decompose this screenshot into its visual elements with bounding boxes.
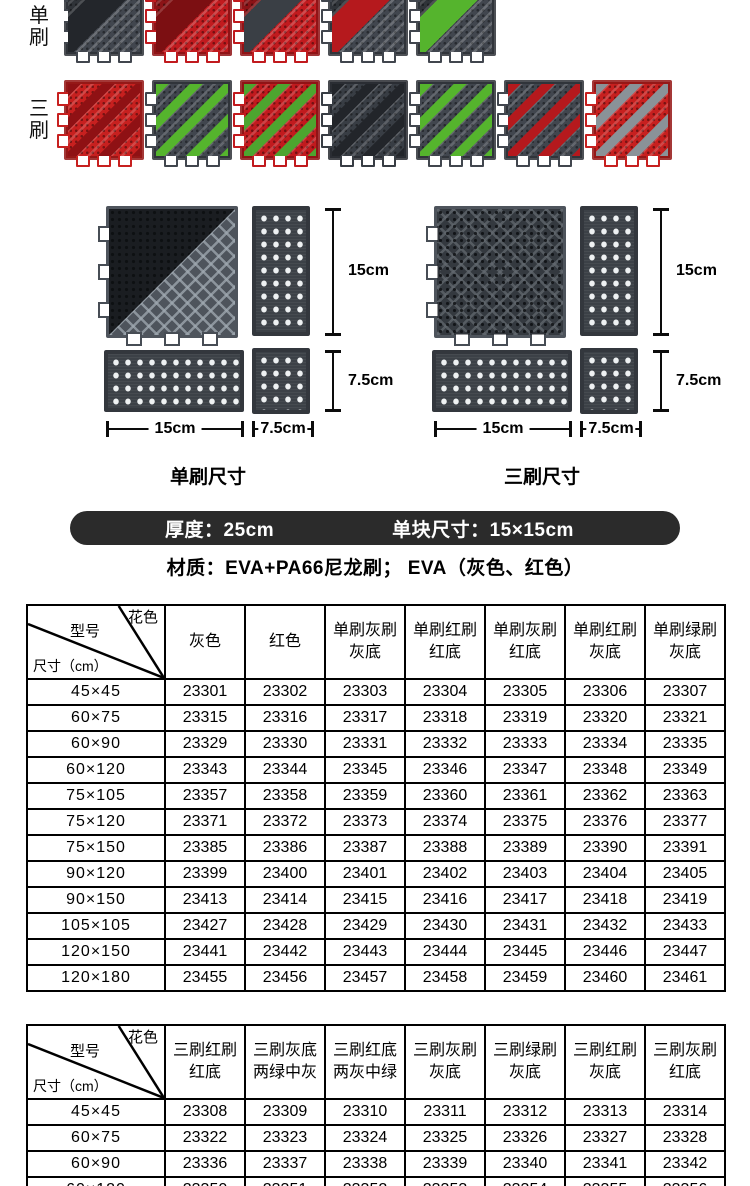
tile-bottom-tabs [592,154,672,167]
single-brush-table-host: 花色型号尺寸（cm）灰色红色单刷灰刷灰底单刷红刷红底单刷灰刷红底单刷红刷灰底单刷… [26,604,726,992]
column-header: 灰色 [165,605,245,679]
code-cell: 23309 [245,1099,325,1125]
corner-label-model: 型号 [70,624,100,640]
code-cell: 23386 [245,835,325,861]
code-cell: 23303 [325,679,405,705]
tile-bottom-tabs [152,50,232,63]
code-cell: 23337 [245,1151,325,1177]
code-cell: 23331 [325,731,405,757]
vertical-dim-15cm-label: 15cm [676,262,717,280]
tile-bottom-tabs [240,50,320,63]
corner-label-size: 尺寸（cm） [33,1078,108,1094]
code-cell: 23371 [165,809,245,835]
size-cell: 75×120 [27,809,165,835]
column-header: 三刷红刷红底 [165,1025,245,1099]
corner-label-pattern: 花色 [128,1030,158,1046]
code-cell: 23302 [245,679,325,705]
code-cell: 23351 [245,1177,325,1186]
column-header: 三刷灰刷红底 [645,1025,725,1099]
code-cell: 23385 [165,835,245,861]
code-cell: 23312 [485,1099,565,1125]
tile-triple-green-brush-gray-base [416,80,496,160]
code-cell: 23310 [325,1099,405,1125]
table-row: 120×150234412344223443234442344523446234… [27,939,725,965]
code-cell: 23417 [485,887,565,913]
code-cell: 23318 [405,705,485,731]
tile-left-tabs [233,80,246,160]
tile-single-red-brush-gray-base [328,0,408,56]
horizontal-dim-7-5cm-label: 7.5cm [586,420,635,438]
code-cell: 23375 [485,809,565,835]
tile-left-tabs [321,0,334,56]
single-brush-diagram-caption: 单刷尺寸 [128,462,288,489]
tile-triple-red-brush-gray-base [504,80,584,160]
size-cell: 120×150 [27,939,165,965]
column-header: 三刷灰底两绿中灰 [245,1025,325,1099]
single-brush-tile-image [106,206,238,338]
code-cell: 23301 [165,679,245,705]
code-cell: 23399 [165,861,245,887]
code-cell: 23332 [405,731,485,757]
size-cell: 60×120 [27,1177,165,1186]
size-cell: 60×75 [27,705,165,731]
code-cell: 23457 [325,965,405,991]
horizontal-dim-7-5cm: 7.5cm [252,428,314,430]
tile-left-tabs [409,0,422,56]
code-cell: 23374 [405,809,485,835]
triple-brush-tile-image [434,206,566,338]
code-cell: 23357 [165,783,245,809]
code-cell: 23360 [405,783,485,809]
code-cell: 23419 [645,887,725,913]
size-cell: 90×150 [27,887,165,913]
column-header: 单刷红刷灰底 [565,605,645,679]
table-row: 45×4523308233092331023311233122331323314 [27,1099,725,1125]
code-cell: 23334 [565,731,645,757]
code-cell: 23308 [165,1099,245,1125]
triple-brush-table-host: 花色型号尺寸（cm）三刷红刷红底三刷灰底两绿中灰三刷红底两灰中绿三刷灰刷灰底三刷… [26,1024,726,1186]
code-cell: 23461 [645,965,725,991]
code-cell: 23346 [405,757,485,783]
corner-label-size: 尺寸（cm） [33,658,108,674]
tile-triple-gray-brush-gray-base [328,80,408,160]
code-cell: 23389 [485,835,565,861]
code-cell: 23358 [245,783,325,809]
code-cell: 23324 [325,1125,405,1151]
code-cell: 23354 [485,1177,565,1186]
code-cell: 23307 [645,679,725,705]
vertical-dim-7-5cm-label: 7.5cm [348,372,393,390]
tile-bottom-tabs [504,154,584,167]
vertical-dim-15cm [332,208,334,336]
code-cell: 23404 [565,861,645,887]
code-cell: 23456 [245,965,325,991]
vertical-dim-15cm [660,208,662,336]
code-cell: 23338 [325,1151,405,1177]
tile-left-tabs [64,0,70,56]
code-cell: 23352 [325,1177,405,1186]
table-row: 60×7523322233232332423325233262332723328 [27,1125,725,1151]
code-cell: 23349 [645,757,725,783]
code-cell: 23330 [245,731,325,757]
code-cell: 23441 [165,939,245,965]
single-brush-row-label: 单刷 [28,5,50,49]
code-cell: 23348 [565,757,645,783]
single-brush-tile-row [64,0,684,63]
horizontal-dim-15cm: 15cm [106,428,244,430]
tile-left-tabs [233,0,246,56]
horizontal-dim-15cm-label: 15cm [149,420,202,438]
code-cell: 23447 [645,939,725,965]
code-cell: 23305 [485,679,565,705]
code-cell: 23363 [645,783,725,809]
code-cell: 23445 [485,939,565,965]
table-row: 60×9023336233372333823339233402334123342 [27,1151,725,1177]
tile-bottom-tabs [64,154,144,167]
code-cell: 23314 [645,1099,725,1125]
tile-left-tabs [57,80,70,160]
size-cell: 75×105 [27,783,165,809]
code-cell: 23391 [645,835,725,861]
tile-bottom-tabs [416,154,496,167]
code-cell: 23444 [405,939,485,965]
code-cell: 23373 [325,809,405,835]
product-spec-page: 单刷 三刷 15cm 7.5cm 15cm 7.5cm 15cm [0,0,750,1186]
code-cell: 23390 [565,835,645,861]
code-cell: 23405 [645,861,725,887]
triple-brush-diagram-caption: 三刷尺寸 [462,462,622,489]
tile-left-tabs [321,80,334,160]
code-cell: 23320 [565,705,645,731]
tile-bottom-tabs [152,154,232,167]
table-corner-header: 花色型号尺寸（cm） [27,605,165,679]
size-cell: 60×90 [27,731,165,757]
tile-bottom-tabs [328,50,408,63]
tile-single-gray-brush-red-base [240,0,320,56]
table-row: 75×1052335723358233592336023361233622336… [27,783,725,809]
code-cell: 23325 [405,1125,485,1151]
tile-single-gray-brush-gray-base [64,0,144,56]
horizontal-dim-15cm: 15cm [434,428,572,430]
vertical-dim-15cm-label: 15cm [348,262,389,280]
code-cell: 23443 [325,939,405,965]
code-cell: 23315 [165,705,245,731]
tile-bottom-tabs [64,50,144,63]
code-cell: 23431 [485,913,565,939]
column-header: 单刷红刷红底 [405,605,485,679]
column-header: 单刷灰刷红底 [485,605,565,679]
tile-left-tabs [585,80,598,160]
single-brush-dimension-diagram: 15cm 7.5cm 15cm 7.5cm [100,200,400,450]
code-cell: 23343 [165,757,245,783]
tile-triple-gray-base-two-green [152,80,232,160]
tile-left-tabs [497,80,510,160]
code-cell: 23326 [485,1125,565,1151]
code-cell: 23319 [485,705,565,731]
tile-bottom-tabs [434,332,566,346]
vertical-strip-image [580,206,638,336]
tile-triple-gray-brush-red-base [592,80,672,160]
code-cell: 23459 [485,965,565,991]
tile-bottom-tabs [240,154,320,167]
corner-label-pattern: 花色 [128,610,158,626]
table-row: 75×1502338523386233872338823389233902339… [27,835,725,861]
size-cell: 60×90 [27,1151,165,1177]
code-cell: 23342 [645,1151,725,1177]
vertical-dim-7-5cm [332,350,334,412]
table-row: 60×1202335023351233522335323354233552335… [27,1177,725,1186]
code-cell: 23432 [565,913,645,939]
table-row: 60×1202334323344233452334623347233482334… [27,757,725,783]
code-cell: 23336 [165,1151,245,1177]
code-cell: 23335 [645,731,725,757]
triple-brush-code-table: 花色型号尺寸（cm）三刷红刷红底三刷灰底两绿中灰三刷红底两灰中绿三刷灰刷灰底三刷… [26,1024,726,1186]
code-cell: 23333 [485,731,565,757]
code-cell: 23372 [245,809,325,835]
code-cell: 23353 [405,1177,485,1186]
code-cell: 23347 [485,757,565,783]
spec-bar: 厚度：25cm 单块尺寸：15×15cm [70,511,680,545]
code-cell: 23414 [245,887,325,913]
tile-left-tabs [98,206,112,338]
code-cell: 23402 [405,861,485,887]
code-cell: 23458 [405,965,485,991]
code-cell: 23460 [565,965,645,991]
code-cell: 23329 [165,731,245,757]
table-row: 60×9023329233302333123332233332333423335 [27,731,725,757]
size-cell: 120×180 [27,965,165,991]
code-cell: 23361 [485,783,565,809]
unit-size-spec: 单块尺寸：15×15cm [392,515,574,542]
vertical-dim-7-5cm [660,350,662,412]
size-cell: 105×105 [27,913,165,939]
code-cell: 23306 [565,679,645,705]
tile-left-tabs [145,0,158,56]
table-row: 75×1202337123372233732337423375233762337… [27,809,725,835]
table-row: 90×1502341323414234152341623417234182341… [27,887,725,913]
thickness-spec: 厚度：25cm [165,515,274,542]
code-cell: 23388 [405,835,485,861]
tile-bottom-tabs [106,332,238,346]
tile-single-green-brush-gray-base [416,0,496,56]
code-cell: 23430 [405,913,485,939]
code-cell: 23345 [325,757,405,783]
tile-left-tabs [145,80,158,160]
tile-bottom-tabs [328,154,408,167]
code-cell: 23418 [565,887,645,913]
code-cell: 23340 [485,1151,565,1177]
column-header: 单刷灰刷灰底 [325,605,405,679]
triple-brush-dimension-diagram: 15cm 7.5cm 15cm 7.5cm [428,200,728,450]
table-row: 45×4523301233022330323304233052330623307 [27,679,725,705]
size-cell: 60×75 [27,1125,165,1151]
code-cell: 23455 [165,965,245,991]
code-cell: 23327 [565,1125,645,1151]
code-cell: 23311 [405,1099,485,1125]
code-cell: 23328 [645,1125,725,1151]
vertical-strip-image [252,206,310,336]
tile-left-tabs [426,206,440,338]
code-cell: 23387 [325,835,405,861]
horizontal-strip-image [104,350,244,412]
tile-triple-red-base-two-gray-mid-green [240,80,320,160]
material-line: 材质：EVA+PA66尼龙刷； EVA（灰色、红色） [0,553,750,580]
corner-label-model: 型号 [70,1044,100,1060]
triple-brush-row-label: 三刷 [28,98,50,142]
code-cell: 23321 [645,705,725,731]
code-cell: 23362 [565,783,645,809]
code-cell: 23446 [565,939,645,965]
table-corner-header: 花色型号尺寸（cm） [27,1025,165,1099]
column-header: 三刷灰刷灰底 [405,1025,485,1099]
column-header: 单刷绿刷灰底 [645,605,725,679]
code-cell: 23344 [245,757,325,783]
triple-brush-tiles [64,80,672,160]
table-row: 90×1202339923400234012340223403234042340… [27,861,725,887]
code-cell: 23400 [245,861,325,887]
code-cell: 23427 [165,913,245,939]
code-cell: 23313 [565,1099,645,1125]
horizontal-dim-7-5cm: 7.5cm [580,428,642,430]
size-cell: 90×120 [27,861,165,887]
code-cell: 23356 [645,1177,725,1186]
code-cell: 23429 [325,913,405,939]
horizontal-dim-7-5cm-label: 7.5cm [258,420,307,438]
code-cell: 23322 [165,1125,245,1151]
tile-bottom-tabs [416,50,496,63]
code-cell: 23323 [245,1125,325,1151]
size-cell: 60×120 [27,757,165,783]
code-cell: 23416 [405,887,485,913]
table-row: 60×7523315233162331723318233192332023321 [27,705,725,731]
single-brush-code-table: 花色型号尺寸（cm）灰色红色单刷灰刷灰底单刷红刷红底单刷灰刷红底单刷红刷灰底单刷… [26,604,726,992]
tile-single-red-brush-red-base [152,0,232,56]
tile-left-tabs [409,80,422,160]
code-cell: 23433 [645,913,725,939]
code-cell: 23401 [325,861,405,887]
size-cell: 75×150 [27,835,165,861]
table-row: 120×180234552345623457234582345923460234… [27,965,725,991]
code-cell: 23442 [245,939,325,965]
code-cell: 23403 [485,861,565,887]
code-cell: 23355 [565,1177,645,1186]
code-cell: 23316 [245,705,325,731]
code-cell: 23428 [245,913,325,939]
small-square-image [252,348,310,414]
code-cell: 23350 [165,1177,245,1186]
code-cell: 23341 [565,1151,645,1177]
column-header: 三刷绿刷灰底 [485,1025,565,1099]
code-cell: 23413 [165,887,245,913]
tile-triple-red-brush-red-base [64,80,144,160]
single-brush-tiles [64,0,684,56]
small-square-image [580,348,638,414]
horizontal-dim-15cm-label: 15cm [477,420,530,438]
column-header: 红色 [245,605,325,679]
code-cell: 23339 [405,1151,485,1177]
horizontal-strip-image [432,350,572,412]
size-cell: 45×45 [27,679,165,705]
code-cell: 23359 [325,783,405,809]
size-cell: 45×45 [27,1099,165,1125]
code-cell: 23376 [565,809,645,835]
code-cell: 23317 [325,705,405,731]
vertical-dim-7-5cm-label: 7.5cm [676,372,721,390]
code-cell: 23377 [645,809,725,835]
column-header: 三刷红刷灰底 [565,1025,645,1099]
code-cell: 23304 [405,679,485,705]
column-header: 三刷红底两灰中绿 [325,1025,405,1099]
table-row: 105×105234272342823429234302343123432234… [27,913,725,939]
code-cell: 23415 [325,887,405,913]
